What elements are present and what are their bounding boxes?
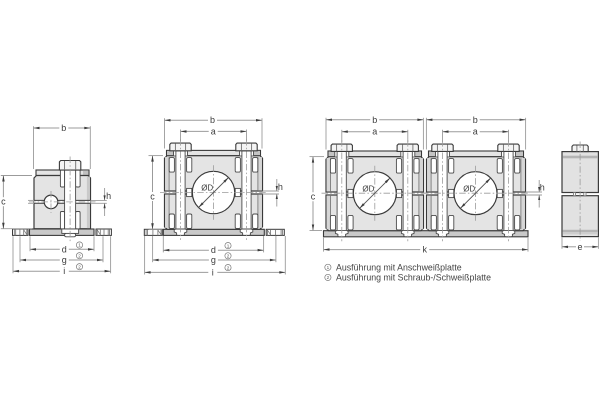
svg-text:2: 2: [227, 265, 230, 270]
svg-text:2: 2: [227, 254, 230, 259]
svg-text:2: 2: [327, 275, 330, 280]
svg-text:b: b: [210, 115, 215, 125]
svg-text:d: d: [211, 245, 216, 255]
svg-text:c: c: [150, 192, 155, 202]
svg-text:b: b: [61, 123, 66, 133]
svg-text:ØD: ØD: [362, 184, 374, 193]
svg-text:ØD: ØD: [201, 184, 213, 193]
svg-text:b: b: [473, 115, 478, 125]
svg-text:1: 1: [78, 243, 81, 248]
svg-text:2: 2: [78, 253, 81, 258]
svg-text:i: i: [212, 267, 214, 277]
svg-text:g: g: [211, 255, 216, 265]
svg-text:2: 2: [78, 264, 81, 269]
svg-text:c: c: [1, 197, 6, 207]
svg-text:Ausführung mit Anschweißplatte: Ausführung mit Anschweißplatte: [336, 263, 462, 273]
svg-text:b: b: [372, 115, 377, 125]
svg-text:a: a: [211, 126, 216, 136]
svg-text:k: k: [422, 245, 427, 255]
svg-text:h: h: [540, 183, 545, 193]
svg-text:a: a: [372, 127, 377, 137]
svg-text:c: c: [311, 192, 316, 202]
svg-text:g: g: [62, 255, 67, 265]
svg-text:i: i: [63, 266, 65, 276]
svg-text:1: 1: [327, 265, 330, 270]
svg-text:1: 1: [227, 243, 230, 248]
svg-text:ØD: ØD: [463, 184, 475, 193]
svg-text:e: e: [577, 242, 582, 252]
svg-text:a: a: [473, 127, 478, 137]
svg-text:h: h: [106, 191, 111, 201]
svg-text:Ausführung mit Schraub-/Schwei: Ausführung mit Schraub-/Schweißplatte: [336, 273, 491, 283]
svg-text:d: d: [62, 244, 67, 254]
svg-text:h: h: [278, 182, 283, 192]
